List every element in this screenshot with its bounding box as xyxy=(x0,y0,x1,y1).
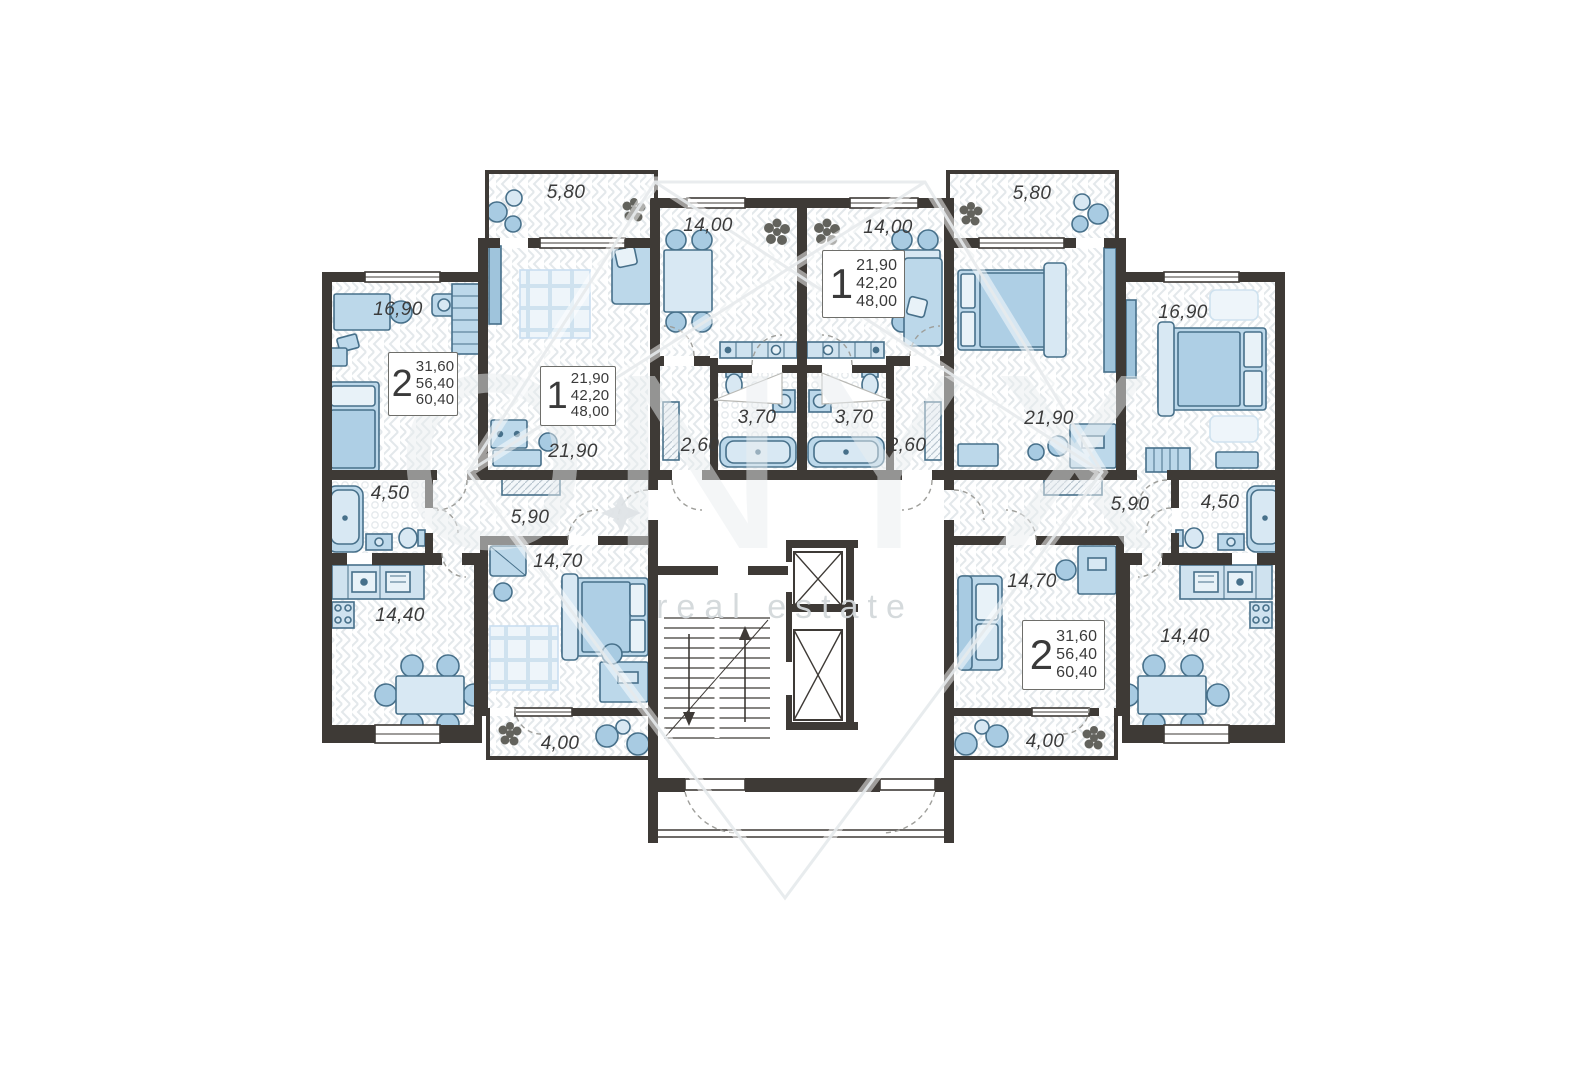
rug-icon xyxy=(1210,290,1258,320)
unit-rooms-count: 1 xyxy=(830,265,853,303)
unit-area-value: 42,20 xyxy=(856,275,897,293)
unit-rooms-count: 2 xyxy=(392,367,413,401)
stairs-icon xyxy=(664,618,770,738)
unit-info-1room-right: 1 21,90 42,20 48,00 xyxy=(822,250,905,318)
unit-rooms-count: 2 xyxy=(1030,636,1053,674)
watermark-brand: ONYX xyxy=(395,322,1176,601)
unit-area-value: 48,00 xyxy=(856,293,897,311)
watermark-subtitle: real estate xyxy=(656,588,914,626)
door-arc-icon xyxy=(882,792,935,833)
window-icon xyxy=(979,238,1064,248)
unit-area-value: 42,20 xyxy=(571,388,610,405)
area-label-bedroom-bottom-right: 14,70 xyxy=(1007,571,1057,593)
area-label-kitchen-left: 14,00 xyxy=(683,215,733,237)
area-label-living-right: 21,90 xyxy=(1024,408,1074,430)
sofa-icon xyxy=(612,242,652,304)
area-label-hall-left: 2,60 xyxy=(681,435,720,457)
toilet-icon xyxy=(1176,528,1203,548)
area-label-kitchen-bottom-right: 14,40 xyxy=(1160,626,1210,648)
unit-area-value: 21,90 xyxy=(571,371,610,388)
bed-icon xyxy=(327,382,379,472)
unit-area-value: 60,40 xyxy=(416,392,455,409)
area-label-living-left: 21,90 xyxy=(548,441,598,463)
bench-icon xyxy=(1216,452,1258,468)
kitchen-counter-icon xyxy=(1180,565,1272,599)
unit-area-value: 31,60 xyxy=(416,359,455,376)
bathtub-icon xyxy=(327,486,363,552)
unit-area-value: 31,60 xyxy=(1056,628,1097,646)
area-label-hall-bottom-left: 5,90 xyxy=(511,507,550,529)
unit-area-value: 56,40 xyxy=(416,376,455,393)
area-label-balcony-top-left: 5,80 xyxy=(547,182,586,204)
unit-area-value: 48,00 xyxy=(571,404,610,421)
area-label-hall-right: 2,60 xyxy=(888,435,927,457)
area-label-bath-bottom-left: 4,50 xyxy=(371,483,410,505)
floor-plan-drawing: ONYX real estate xyxy=(0,0,1570,1080)
sink-icon xyxy=(366,534,392,550)
area-label-bath-right: 3,70 xyxy=(835,407,874,429)
unit-area-value: 21,90 xyxy=(856,257,897,275)
unit-info-1room-left: 1 21,90 42,20 48,00 xyxy=(540,366,616,426)
tv-panel-icon xyxy=(489,246,501,324)
area-label-balcony-bottom-left: 4,00 xyxy=(541,733,580,755)
area-label-bath-bottom-right: 4,50 xyxy=(1201,492,1240,514)
window-icon xyxy=(1164,272,1239,282)
unit-info-2room-right: 2 31,60 56,40 60,40 xyxy=(1022,620,1105,690)
unit-area-value: 60,40 xyxy=(1056,664,1097,682)
window-icon xyxy=(365,272,440,282)
stove-icon xyxy=(1250,602,1272,628)
unit-rooms-count: 1 xyxy=(547,379,568,413)
area-label-balcony-top-right: 5,80 xyxy=(1013,183,1052,205)
area-label-bedroom-bottom-left: 14,70 xyxy=(533,551,583,573)
elevator-icon xyxy=(794,630,842,720)
stove-icon xyxy=(332,602,354,628)
area-label-bedroom-top-left: 16,90 xyxy=(373,299,423,321)
area-label-bath-left: 3,70 xyxy=(738,407,777,429)
unit-area-value: 56,40 xyxy=(1056,646,1097,664)
unit-info-2room-left: 2 31,60 56,40 60,40 xyxy=(388,352,458,416)
floor-plan-page: ONYX real estate 5,80 16,90 21,90 14,00 … xyxy=(0,0,1570,1080)
area-label-hall-bottom-right: 5,90 xyxy=(1111,494,1150,516)
window-icon xyxy=(375,725,440,743)
area-label-balcony-bottom-right: 4,00 xyxy=(1026,731,1065,753)
window-icon xyxy=(1164,725,1229,743)
rug-icon xyxy=(490,626,558,690)
area-label-kitchen-right: 14,00 xyxy=(863,217,913,239)
rug-icon xyxy=(1210,416,1258,442)
sink-icon xyxy=(1218,534,1244,550)
window-icon xyxy=(1032,708,1089,716)
window-icon xyxy=(658,830,944,837)
area-label-kitchen-bottom-left: 14,40 xyxy=(375,605,425,627)
area-label-bedroom-top-right: 16,90 xyxy=(1158,302,1208,324)
window-icon xyxy=(515,708,572,716)
door-leaf-icon xyxy=(880,779,935,790)
